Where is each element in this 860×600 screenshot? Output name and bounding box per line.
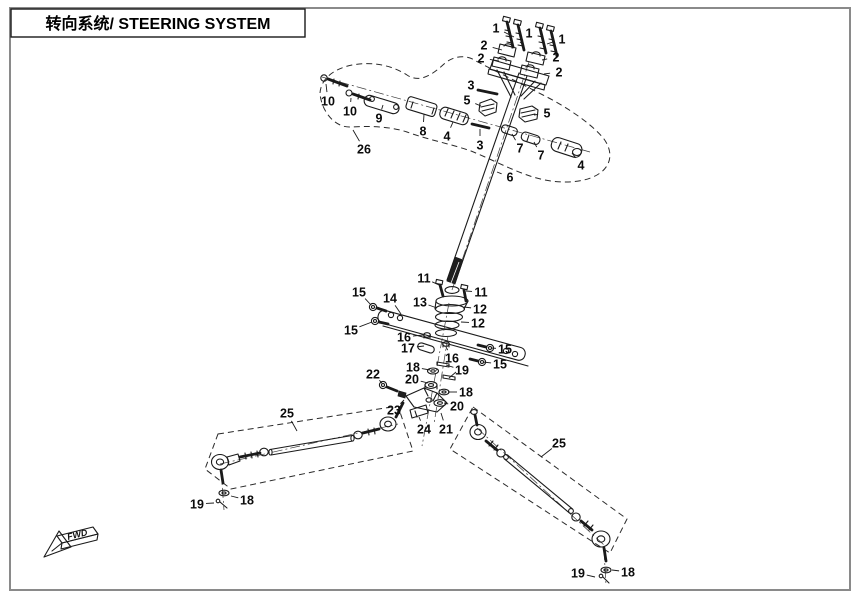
callout-1-0: 1 xyxy=(493,21,500,35)
clamp-2b xyxy=(492,57,511,70)
washer-18-right xyxy=(601,567,611,573)
group-outline-26 xyxy=(320,57,610,182)
bushing-stack xyxy=(435,296,468,337)
callout-5-15: 5 xyxy=(544,106,551,120)
callout-7-17: 7 xyxy=(517,141,524,155)
fwd-label: FWD xyxy=(66,527,89,542)
callout-4-12: 4 xyxy=(444,129,451,143)
bolt-10b xyxy=(346,90,370,100)
page-title: 转向系统/ STEERING SYSTEM xyxy=(46,14,271,33)
callout-leader-19-47 xyxy=(587,575,595,577)
pin-17 xyxy=(417,342,435,354)
callout-11-22: 11 xyxy=(474,285,487,299)
callout-25-43: 25 xyxy=(280,406,294,420)
fwd-arrow: FWD xyxy=(44,527,98,557)
callout-11-21: 11 xyxy=(417,271,430,285)
washer-18a xyxy=(428,368,439,374)
callout-15-32: 15 xyxy=(498,342,512,356)
callout-leader-15-23 xyxy=(365,299,371,305)
callout-leader-6-20 xyxy=(497,172,502,174)
washer-18b xyxy=(439,389,449,395)
callout-leader-18-46 xyxy=(231,496,238,498)
callout-9-10: 9 xyxy=(376,111,383,125)
callout-leader-24-41 xyxy=(419,417,421,421)
page-border xyxy=(10,8,850,590)
callout-leader-2-6 xyxy=(544,73,550,74)
inner-ball-joint-right xyxy=(470,425,486,440)
callout-12-27: 12 xyxy=(471,316,485,330)
callout-18-46: 18 xyxy=(240,493,254,507)
callout-leader-14-24 xyxy=(395,305,401,314)
callout-leader-20-39 xyxy=(444,403,448,404)
callout-13-25: 13 xyxy=(413,295,427,309)
callout-17-30: 17 xyxy=(401,341,415,355)
ball-stud-left xyxy=(221,470,223,483)
callout-19-45: 19 xyxy=(190,497,204,511)
callout-15-28: 15 xyxy=(344,323,358,337)
callout-2-4: 2 xyxy=(478,51,485,65)
callout-2-3: 2 xyxy=(481,38,488,52)
callout-8-11: 8 xyxy=(420,124,427,138)
callout-leader-21-42 xyxy=(441,413,443,420)
callout-22-37: 22 xyxy=(366,367,380,381)
callout-leader-15-28 xyxy=(359,322,372,327)
callout-leader-25-44 xyxy=(541,449,552,457)
castle-nut-right xyxy=(471,410,477,415)
callout-10-9: 10 xyxy=(343,104,357,118)
callout-2-6: 2 xyxy=(556,65,563,79)
callout-7-18: 7 xyxy=(538,148,545,162)
callout-3-16: 3 xyxy=(477,138,484,152)
cylinder-8 xyxy=(405,96,437,117)
callout-19-47: 19 xyxy=(571,566,585,580)
callout-18-48: 18 xyxy=(621,565,635,579)
callout-14-24: 14 xyxy=(383,291,397,305)
bushing-5-left xyxy=(479,99,497,116)
callout-1-2: 1 xyxy=(559,32,566,46)
outer-ball-joint-right xyxy=(592,531,610,547)
spring-4-left xyxy=(438,106,469,126)
callout-leader-9-10 xyxy=(382,105,383,109)
damper-4-right xyxy=(550,136,584,159)
callout-6-20: 6 xyxy=(507,170,514,184)
outer-ball-joint xyxy=(212,454,241,470)
inner-ball-joint xyxy=(380,417,396,431)
rod-right xyxy=(486,441,593,530)
callout-12-26: 12 xyxy=(473,302,487,316)
bolt-15b xyxy=(371,317,388,324)
callout-leader-2-3 xyxy=(493,47,502,50)
callout-leader-18-48 xyxy=(612,570,619,571)
callout-24-41: 24 xyxy=(417,422,431,436)
callout-23-40: 23 xyxy=(387,403,401,417)
bolt-1c xyxy=(535,22,546,53)
callout-leader-5-15 xyxy=(534,114,538,115)
inner-stud-right xyxy=(475,415,477,425)
pin-3a xyxy=(478,90,497,94)
centerline-lower-b xyxy=(434,336,448,424)
pin-3b xyxy=(472,124,489,128)
callout-26-13: 26 xyxy=(357,142,371,156)
callout-19-35: 19 xyxy=(455,363,469,377)
group-outline-25-left xyxy=(205,406,413,489)
callout-3-7: 3 xyxy=(468,78,475,92)
cotter-pin-19-right xyxy=(599,574,609,583)
callout-leader-26-13 xyxy=(353,130,359,141)
callout-leader-10-8 xyxy=(326,84,327,92)
callout-1-1: 1 xyxy=(526,26,533,40)
spline-section xyxy=(447,257,463,284)
bolt-1a xyxy=(502,16,513,47)
callout-15-23: 15 xyxy=(352,285,366,299)
callout-leader-2-5 xyxy=(542,59,547,60)
parts-catalog-page: 转向系统/ STEERING SYSTEM xyxy=(0,0,860,600)
title-box: 转向系统/ STEERING SYSTEM xyxy=(11,9,305,37)
clamp-24 xyxy=(410,405,428,418)
callout-5-14: 5 xyxy=(464,93,471,107)
clamp-2d xyxy=(520,65,539,78)
cotter-pin-19-left xyxy=(216,499,227,508)
spacer-7a xyxy=(501,124,519,137)
callout-10-8: 10 xyxy=(321,94,335,108)
callout-leader-4-12 xyxy=(451,122,453,128)
tie-rod-left xyxy=(205,403,413,510)
bolt-11-left xyxy=(436,279,443,296)
callout-20-36: 20 xyxy=(405,372,419,386)
washer-18-left xyxy=(219,490,229,496)
ball-stud-right xyxy=(604,548,606,561)
tie-rod-right xyxy=(450,407,627,585)
callout-21-42: 21 xyxy=(439,422,453,436)
callout-4-19: 4 xyxy=(578,158,585,172)
callout-2-5: 2 xyxy=(553,50,560,64)
callout-18-38: 18 xyxy=(459,385,473,399)
callout-25-44: 25 xyxy=(552,436,566,450)
callout-leader-25-43 xyxy=(291,421,297,431)
callout-leader-16-31 xyxy=(446,347,448,350)
callout-15-33: 15 xyxy=(493,357,507,371)
callout-20-39: 20 xyxy=(450,399,464,413)
castle-nut-23 xyxy=(398,391,406,398)
steering-diagram: 转向系统/ STEERING SYSTEM xyxy=(0,0,860,600)
rod-left xyxy=(240,428,379,459)
bolt-1b xyxy=(513,19,524,50)
callout-leader-15-33 xyxy=(483,362,491,363)
bushing-5-right xyxy=(519,106,538,122)
